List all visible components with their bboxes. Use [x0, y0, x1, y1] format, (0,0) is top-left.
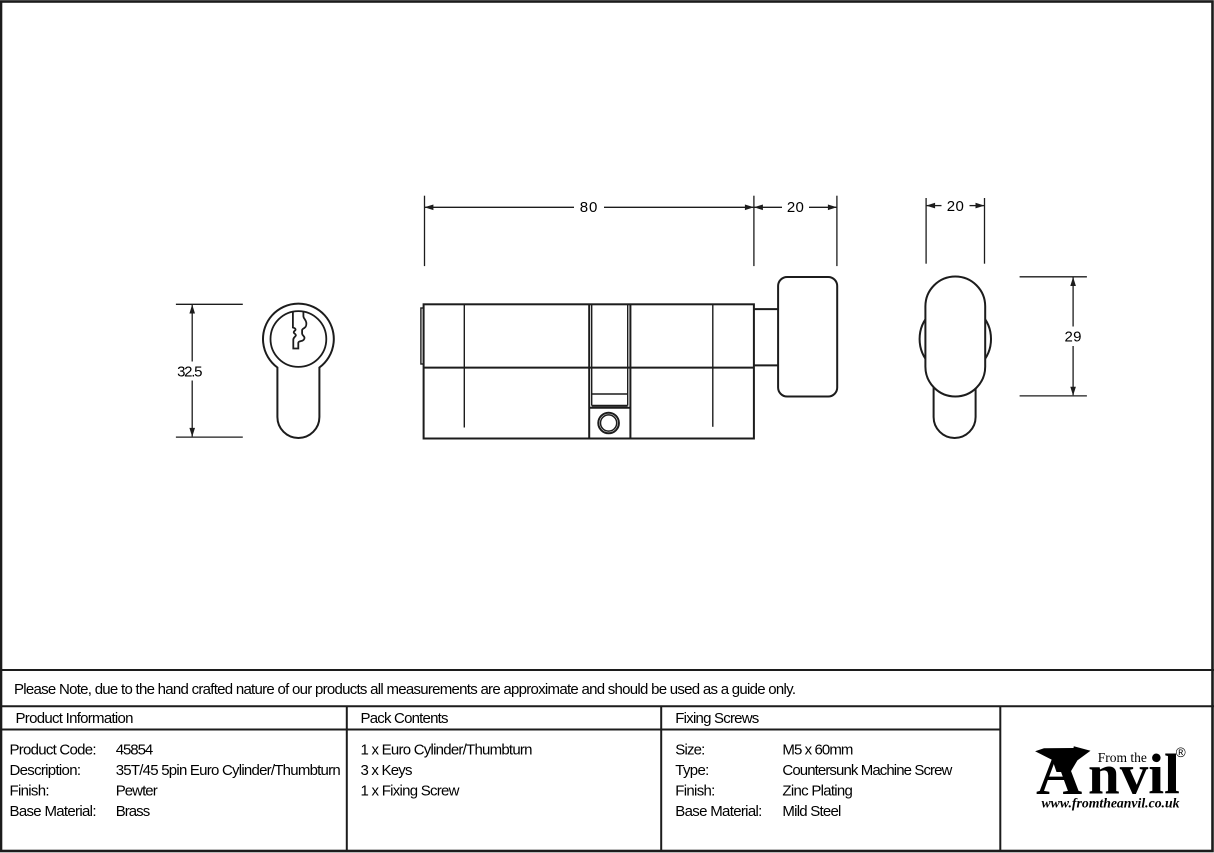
svg-text:Pack Contents: Pack Contents: [361, 710, 449, 727]
svg-text:Fixing Screws: Fixing Screws: [675, 710, 759, 727]
svg-text:80: 80: [580, 199, 598, 216]
svg-text:Pewter: Pewter: [116, 783, 158, 800]
svg-text:Zinc Plating: Zinc Plating: [782, 783, 853, 800]
svg-text:45854: 45854: [116, 742, 154, 759]
svg-text:1 x Fixing Screw: 1 x Fixing Screw: [361, 783, 460, 800]
svg-text:www.fromtheanvil.co.uk: www.fromtheanvil.co.uk: [1042, 796, 1180, 811]
svg-text:Base Material:: Base Material:: [10, 803, 97, 820]
svg-text:Product Information: Product Information: [16, 710, 134, 727]
svg-text:3 x Keys: 3 x Keys: [361, 762, 413, 779]
svg-text:M5 x 60mm: M5 x 60mm: [782, 742, 853, 759]
svg-text:35T/45 5pin Euro Cylinder/Thum: 35T/45 5pin Euro Cylinder/Thumbturn: [116, 762, 341, 779]
svg-text:Type:: Type:: [675, 762, 709, 779]
svg-text:20: 20: [787, 199, 804, 216]
svg-text:Brass: Brass: [116, 803, 151, 820]
svg-text:Mild Steel: Mild Steel: [782, 803, 841, 820]
svg-text:Please Note, due to the hand c: Please Note, due to the hand crafted nat…: [14, 681, 796, 698]
svg-text:29: 29: [1065, 329, 1082, 346]
svg-text:Product Code:: Product Code:: [10, 742, 97, 759]
svg-text:20: 20: [947, 198, 964, 215]
svg-text:Size:: Size:: [675, 742, 705, 759]
svg-text:1 x Euro Cylinder/Thumbturn: 1 x Euro Cylinder/Thumbturn: [361, 742, 533, 759]
svg-text:Finish:: Finish:: [10, 783, 50, 800]
svg-text:32.5: 32.5: [177, 363, 202, 380]
svg-text:Description:: Description:: [10, 762, 82, 779]
svg-text:®: ®: [1176, 745, 1186, 760]
svg-text:Finish:: Finish:: [675, 783, 715, 800]
svg-text:Countersunk Machine Screw: Countersunk Machine Screw: [782, 762, 952, 779]
svg-text:Base Material:: Base Material:: [675, 803, 762, 820]
svg-text:From the: From the: [1098, 750, 1147, 765]
